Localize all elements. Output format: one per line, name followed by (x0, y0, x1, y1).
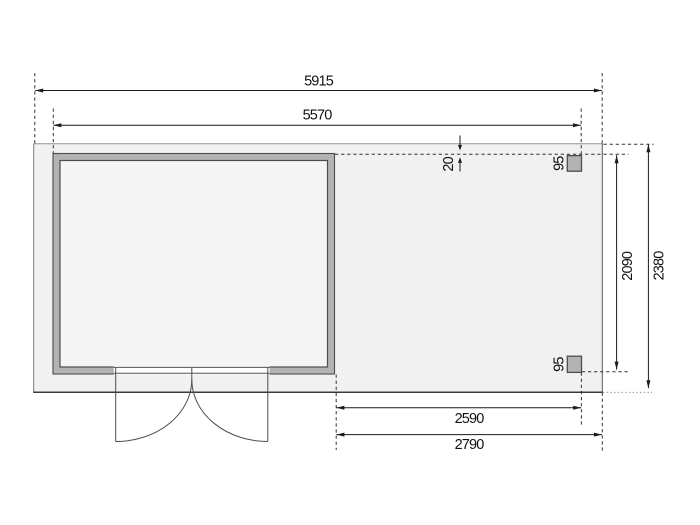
svg-text:95: 95 (552, 357, 568, 372)
svg-text:20: 20 (441, 156, 457, 171)
svg-text:2790: 2790 (455, 437, 485, 453)
svg-text:2090: 2090 (620, 251, 636, 281)
svg-text:5915: 5915 (304, 73, 334, 89)
svg-text:95: 95 (552, 156, 568, 171)
svg-text:2380: 2380 (652, 251, 668, 281)
svg-text:5570: 5570 (303, 108, 333, 124)
svg-text:2590: 2590 (455, 411, 485, 427)
